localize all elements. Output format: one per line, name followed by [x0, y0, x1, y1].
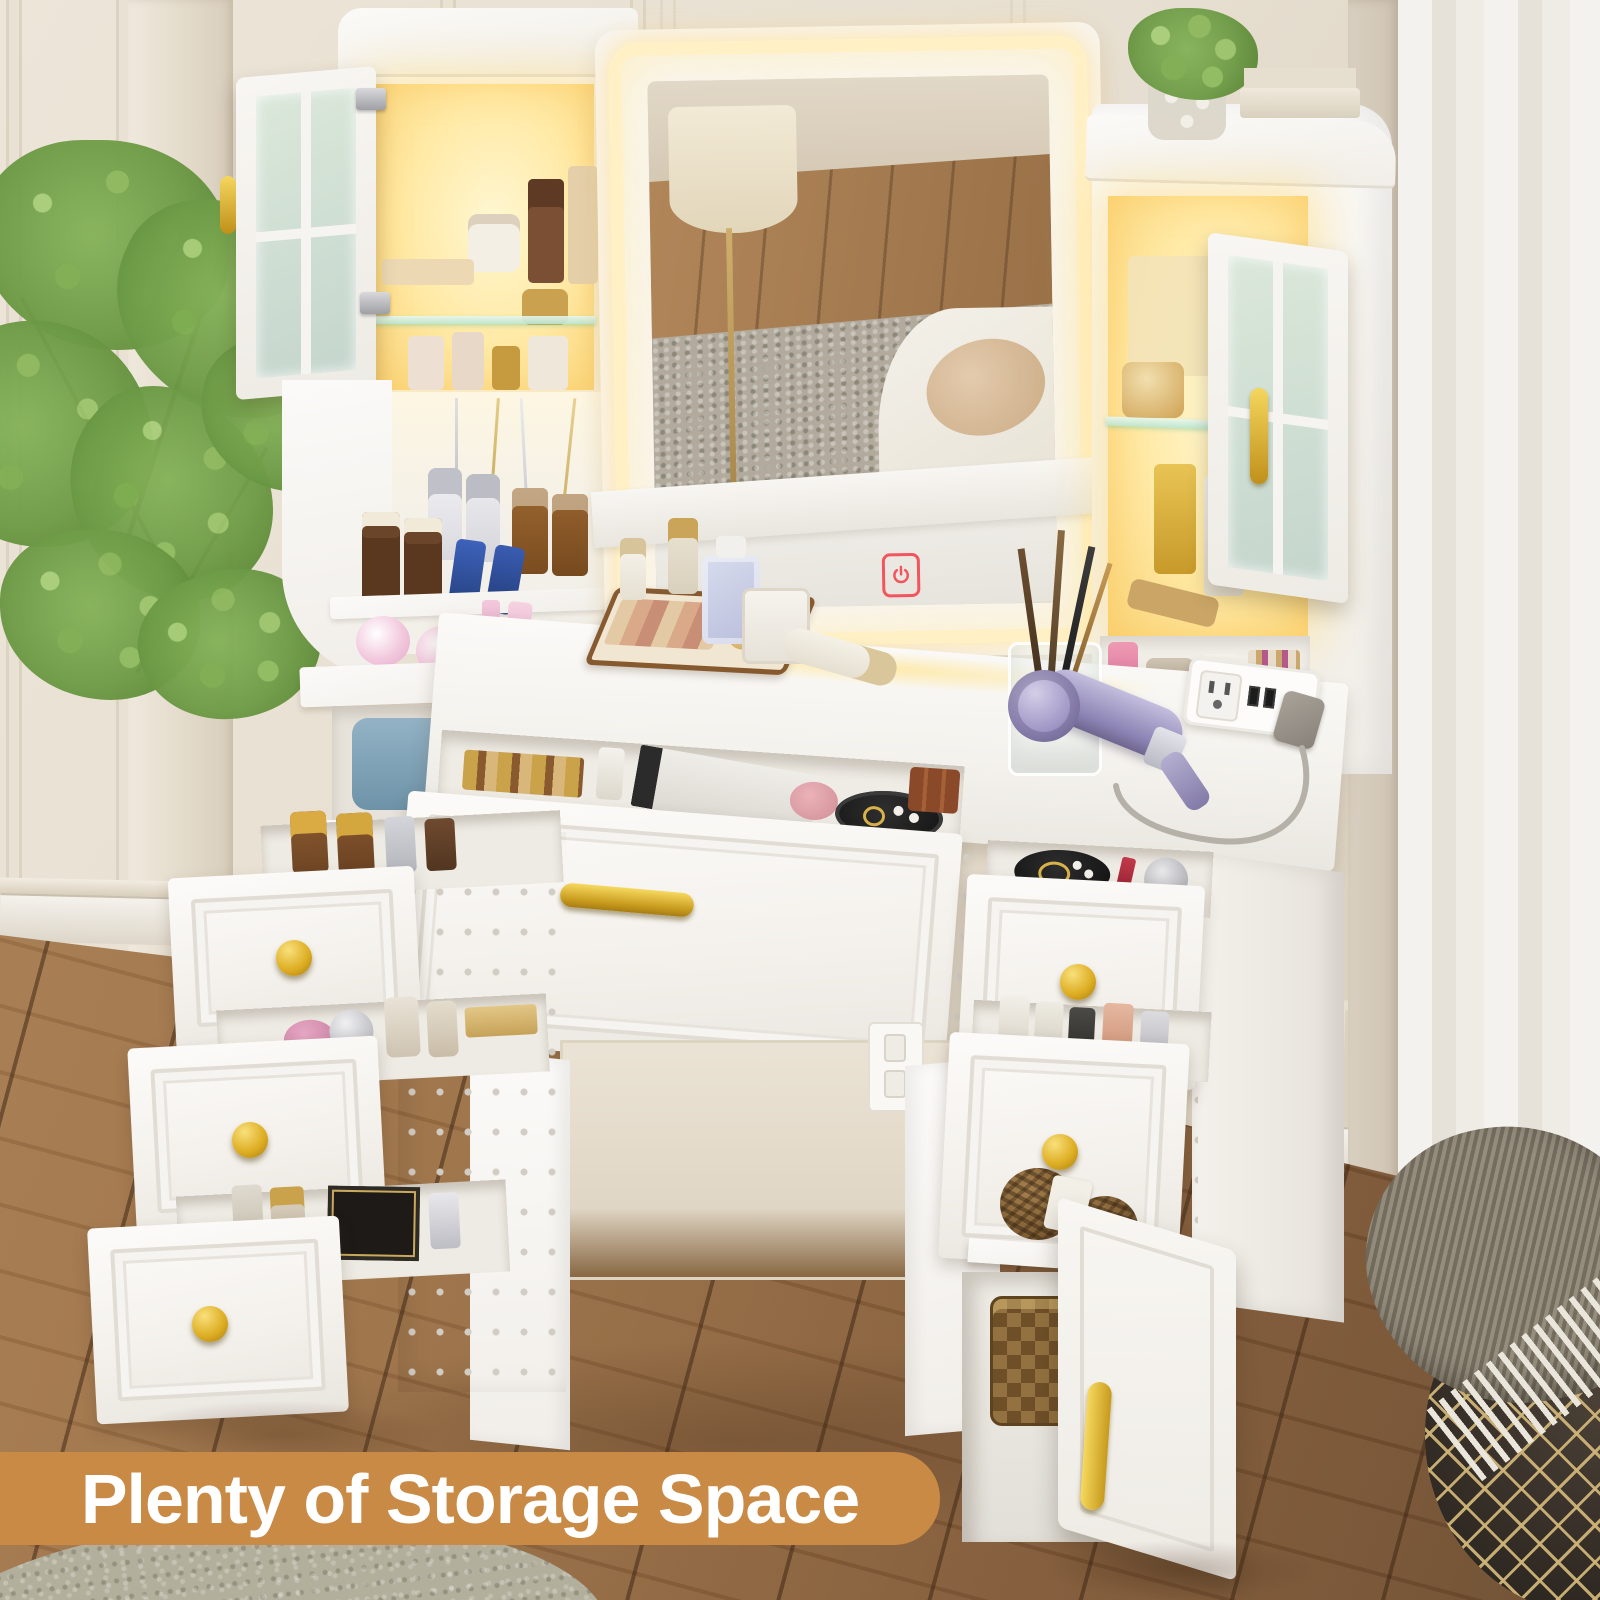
outlet-face: [884, 1070, 906, 1098]
left-drawer-2-knob: [232, 1122, 268, 1158]
right-cabinet-glass-door: [1208, 232, 1348, 604]
pearl-earrings: [1072, 861, 1081, 870]
bottom-cabinet-door: [1058, 1197, 1236, 1581]
door-mullion: [301, 92, 311, 375]
product-photo-vanity-scene: Plenty of Storage Space: [0, 0, 1600, 1600]
cosmetic-item: [528, 336, 568, 390]
left-door-handle: [220, 176, 236, 234]
outlet-face: [884, 1034, 906, 1062]
gold-bottle: [1154, 464, 1196, 574]
white-spray-bottle: [596, 747, 626, 801]
gold-palette: [464, 1004, 537, 1038]
outlet-slot: [1224, 683, 1230, 696]
cosmetic-item: [382, 259, 474, 285]
gold-cap-bottle: [336, 812, 375, 874]
perfume-cap: [716, 536, 746, 558]
black-perfume-box: [327, 1186, 420, 1262]
power-symbol-icon: [891, 564, 911, 586]
left-tower-top-board: [338, 8, 638, 77]
pearl-earrings: [893, 806, 904, 817]
door-shadow: [1040, 1540, 1320, 1600]
cosmetic-item: [528, 179, 564, 283]
reflected-lamp-shade: [668, 105, 799, 234]
dropper-bottle-white: [620, 538, 646, 600]
door-mullion: [1273, 261, 1283, 574]
cosmetic-item: [468, 214, 520, 272]
glass-pane: [256, 88, 356, 379]
glass-shelf: [370, 316, 596, 324]
touch-power-icon: [882, 553, 921, 598]
lipstick-row: [462, 749, 584, 797]
right-door-handle: [1250, 388, 1268, 484]
right-drawer-2-knob: [1042, 1134, 1078, 1170]
caption-banner: Plenty of Storage Space: [0, 1452, 940, 1545]
left-drawer-1-knob: [276, 940, 312, 976]
cosmetic-item: [452, 332, 484, 390]
clear-perfume: [384, 996, 421, 1058]
amber-bottle-trio: [907, 767, 960, 814]
curtain: [1398, 0, 1600, 1230]
gold-cream-jar: [1122, 362, 1184, 418]
gold-cap-bottle: [290, 810, 329, 874]
glass-pane: [1228, 255, 1328, 581]
left-cabinet-glass-door: [236, 66, 376, 400]
cosmetic-item: [408, 336, 444, 390]
door-hinge: [356, 88, 386, 110]
hair-dryer: [1008, 658, 1218, 808]
decor-boxes: [1240, 88, 1360, 118]
left-drawer-3-knob: [192, 1306, 228, 1342]
perfume-bottle: [384, 816, 417, 873]
dropper-bottle: [362, 512, 400, 602]
left-cabinet-interior: [372, 84, 594, 390]
dryer-head: [1008, 670, 1080, 742]
clear-perfume: [426, 1000, 459, 1057]
pink-cream-jar: [356, 616, 410, 666]
door-hinge: [360, 292, 390, 314]
right-tower-top-board: [1085, 114, 1397, 189]
right-drawer-1-knob: [1060, 964, 1096, 1000]
amber-spray-bottle: [552, 494, 588, 576]
left-pedestal-rails: [398, 832, 566, 1392]
silver-cap-bottle: [428, 1192, 461, 1249]
dryer-handle: [1157, 748, 1213, 814]
dark-bottle: [424, 818, 457, 871]
cosmetic-item: [492, 346, 520, 390]
gold-band-bottle: [668, 518, 698, 594]
cosmetic-item: [568, 166, 598, 284]
gold-ring: [862, 805, 885, 826]
caption-text: Plenty of Storage Space: [81, 1459, 859, 1539]
